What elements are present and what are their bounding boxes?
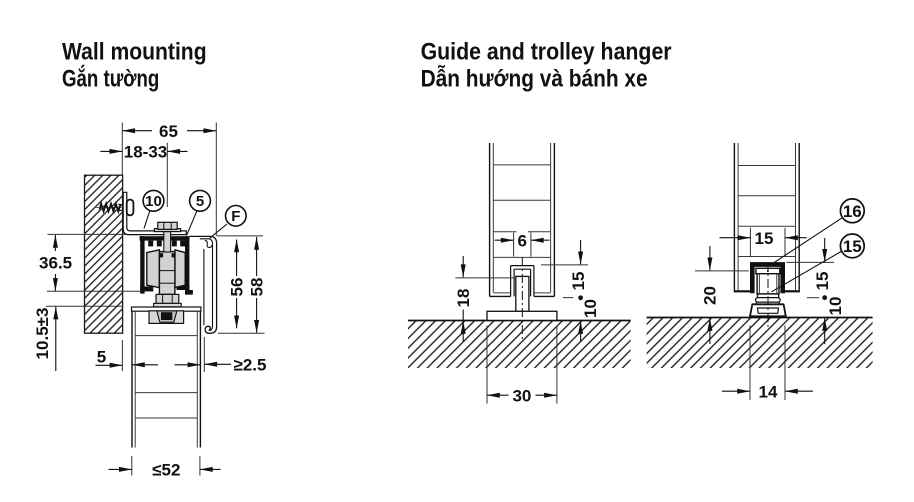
svg-text:20: 20 [701,286,720,305]
svg-text:5: 5 [196,193,204,210]
svg-text:15: 15 [755,229,774,248]
svg-text:15: 15 [813,272,832,291]
svg-text:10: 10 [826,297,845,316]
svg-text:15: 15 [569,272,588,291]
svg-text:≤52: ≤52 [152,461,180,480]
svg-text:10: 10 [581,299,600,318]
svg-text:≥2.5: ≥2.5 [234,356,267,375]
svg-text:Gắn tường: Gắn tường [62,65,159,93]
svg-text:58: 58 [248,278,267,297]
svg-text:Guide and trolley hanger: Guide and trolley hanger [421,39,672,66]
svg-text:65: 65 [159,122,178,141]
svg-text:F: F [231,208,240,225]
svg-text:Wall mounting: Wall mounting [62,39,207,66]
svg-text:36.5: 36.5 [39,254,72,273]
svg-text:18-33: 18-33 [124,143,167,162]
svg-text:Dẫn hướng và bánh xe: Dẫn hướng và bánh xe [421,65,648,93]
svg-text:15: 15 [843,237,862,256]
svg-text:10: 10 [145,193,162,210]
svg-text:30: 30 [512,386,531,405]
svg-text:5: 5 [97,348,106,367]
svg-text:16: 16 [843,202,862,221]
svg-text:14: 14 [759,382,778,401]
svg-text:6: 6 [517,231,526,250]
svg-text:10.5±3: 10.5±3 [33,308,52,360]
svg-text:18: 18 [454,289,473,308]
svg-text:56: 56 [228,278,247,297]
